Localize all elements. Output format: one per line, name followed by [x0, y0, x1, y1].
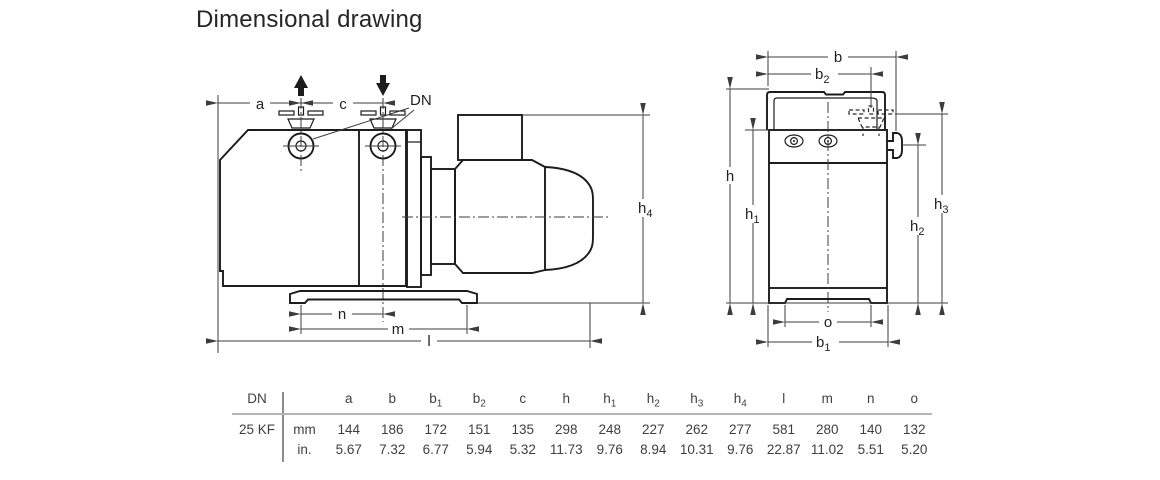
unit-label-mm: mm [282, 422, 327, 438]
value-in: 7.32 [371, 442, 415, 458]
col-header-m: m [806, 391, 850, 407]
dim-label-a: a [256, 96, 265, 113]
value-mm: 151 [458, 422, 502, 438]
value-mm: 581 [762, 422, 806, 438]
motor-flange [421, 157, 431, 275]
row-label-dn: 25 KF [232, 422, 282, 438]
value-in: 5.67 [327, 442, 371, 458]
value-in: 6.77 [414, 442, 458, 458]
table-header-row: DN a b b1 b2 c h h1 h2 h3 h4 l m n o [232, 391, 936, 407]
value-mm: 280 [806, 422, 850, 438]
value-mm: 227 [632, 422, 676, 438]
dim-label-n: n [338, 306, 346, 323]
unit-label-in: in. [282, 442, 327, 458]
value-in: 9.76 [719, 442, 763, 458]
table-row-mm: 25 KF mm 144 186 172 151 135 298 248 227… [232, 422, 936, 438]
value-in: 8.94 [632, 442, 676, 458]
dim-label-m: m [392, 321, 405, 338]
value-mm: 132 [893, 422, 937, 438]
value-mm: 298 [545, 422, 589, 438]
adapter-plate [407, 130, 421, 287]
dim-label-dn: DN [410, 92, 432, 109]
value-in: 22.87 [762, 442, 806, 458]
pump-body-outline [220, 130, 406, 286]
junction-box [458, 115, 522, 160]
dim-label-l: l [427, 333, 430, 350]
dim-label-c: c [339, 96, 347, 113]
value-mm: 248 [588, 422, 632, 438]
dimensional-drawing: a c DN h4 n m l [0, 0, 1160, 378]
gas-ballast-knob [887, 133, 902, 158]
col-header-h2: h2 [632, 391, 676, 407]
col-header-b2: b2 [458, 391, 502, 407]
motor-end-cap [545, 167, 593, 270]
col-header-n: n [849, 391, 893, 407]
value-in: 9.76 [588, 442, 632, 458]
col-header-h3: h3 [675, 391, 719, 407]
col-header-a: a [327, 391, 371, 407]
col-header-l: l [762, 391, 806, 407]
value-mm: 144 [327, 422, 371, 438]
exhaust-up-arrow [294, 75, 308, 96]
page: Dimensional drawing [0, 0, 1160, 480]
value-in: 5.94 [458, 442, 502, 458]
intake-down-arrow [376, 75, 390, 96]
value-mm: 186 [371, 422, 415, 438]
col-header-h4: h4 [719, 391, 763, 407]
value-mm: 135 [501, 422, 545, 438]
value-mm: 172 [414, 422, 458, 438]
value-in: 11.73 [545, 442, 589, 458]
value-in: 5.32 [501, 442, 545, 458]
front-view: b b2 h h1 h2 h3 [721, 49, 955, 354]
col-header-c: c [501, 391, 545, 407]
side-view: a c DN h4 n m l [218, 75, 660, 353]
value-in: 5.51 [849, 442, 893, 458]
table-row-in: in. 5.67 7.32 6.77 5.94 5.32 11.73 9.76 … [232, 442, 936, 458]
value-mm: 140 [849, 422, 893, 438]
col-header-o: o [893, 391, 937, 407]
value-mm: 277 [719, 422, 763, 438]
col-header-b: b [371, 391, 415, 407]
dim-label-h: h [726, 168, 734, 185]
sight-glass [785, 135, 803, 147]
dim-label-o: o [824, 314, 832, 331]
value-mm: 262 [675, 422, 719, 438]
value-in: 5.20 [893, 442, 937, 458]
col-header-h1: h1 [588, 391, 632, 407]
table-horizontal-rule [232, 413, 932, 415]
table-header-dn: DN [232, 391, 282, 407]
col-header-b1: b1 [414, 391, 458, 407]
dim-label-b: b [834, 49, 842, 66]
col-header-h: h [545, 391, 589, 407]
value-in: 11.02 [806, 442, 850, 458]
value-in: 10.31 [675, 442, 719, 458]
